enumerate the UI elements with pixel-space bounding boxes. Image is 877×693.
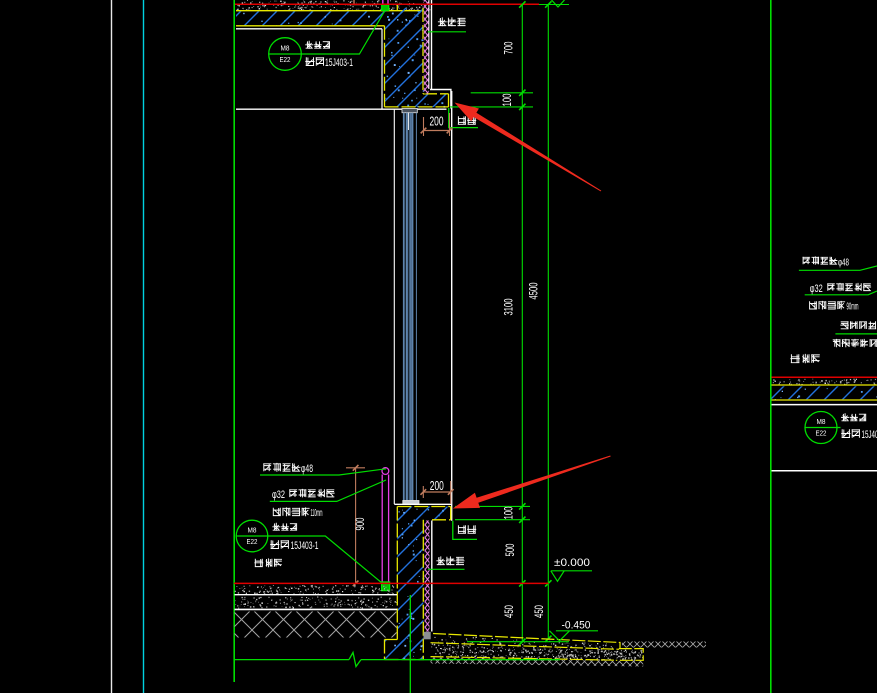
svg-text:M8: M8	[817, 417, 826, 426]
svg-text:φ48: φ48	[838, 257, 849, 269]
svg-text:90mm: 90mm	[847, 302, 859, 313]
svg-text:450: 450	[532, 605, 546, 618]
svg-text:900: 900	[355, 518, 367, 531]
svg-text:15J403-1: 15J403-1	[291, 540, 319, 552]
svg-text:4500: 4500	[527, 282, 541, 299]
svg-text:M8: M8	[281, 44, 290, 53]
svg-text:E22: E22	[816, 429, 827, 438]
svg-text:200: 200	[430, 479, 444, 493]
svg-text:±0.000: ±0.000	[554, 557, 590, 569]
svg-text:E22: E22	[280, 55, 291, 64]
svg-text:φ48: φ48	[301, 463, 313, 475]
svg-text:700: 700	[502, 41, 516, 54]
svg-text:110mm: 110mm	[311, 508, 323, 519]
svg-text:500: 500	[503, 543, 517, 556]
svg-text:M8: M8	[248, 526, 257, 535]
svg-text:φ32: φ32	[810, 283, 823, 295]
svg-text:φ32: φ32	[272, 489, 285, 501]
svg-text:450: 450	[502, 605, 516, 618]
svg-text:15J403-1: 15J403-1	[325, 57, 353, 69]
svg-text:3100: 3100	[502, 298, 516, 315]
svg-text:100: 100	[502, 506, 516, 519]
svg-text:E22: E22	[247, 537, 258, 546]
svg-text:15J403-1: 15J403-1	[862, 429, 877, 441]
svg-text:-0.450: -0.450	[562, 620, 591, 632]
svg-text:100: 100	[500, 93, 514, 106]
svg-text:200: 200	[430, 115, 444, 129]
